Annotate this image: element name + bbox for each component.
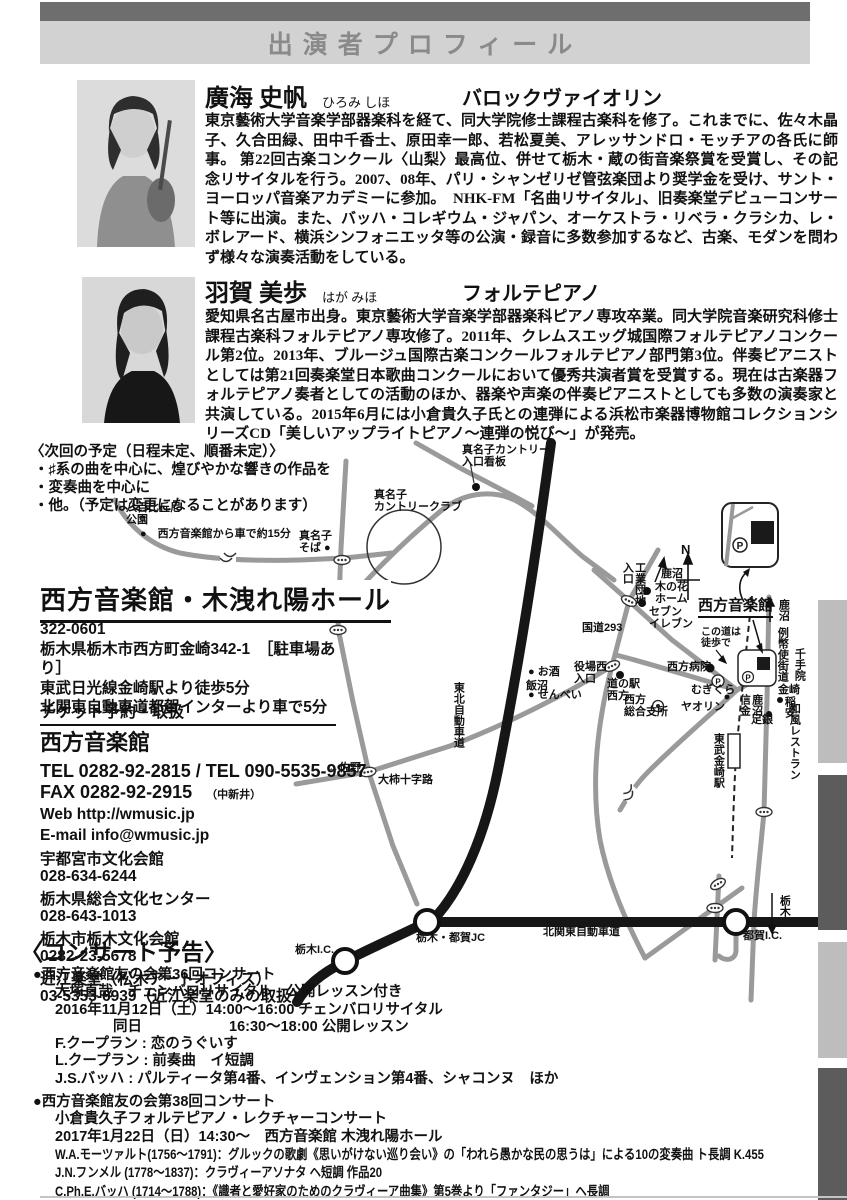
next-plan-item: ・変奏曲を中心に	[34, 479, 331, 497]
map-label-yakuba: 役場西 入口	[574, 661, 607, 686]
performer-bio-1: 東京藝術大学音楽学部器楽科を経て、同大学院修士課程古楽科を修了。これまでに、佐々…	[205, 112, 838, 268]
performer-instrument-2: フォルテピアノ	[462, 277, 600, 306]
concert-title-0: ●西方音楽館友の会第36回コンサート	[33, 967, 847, 984]
map-label-kogyo-danchi: 工業団地 入口	[621, 562, 646, 606]
next-plan-title: 〈次回の予定（日程未定、順番未定）〉	[30, 443, 331, 461]
map-label-mugikura: むぎくら	[691, 684, 735, 696]
map-label-tobu-sta: 東武金崎駅	[712, 733, 724, 788]
email-address[interactable]: E-mail info@wmusic.jp	[40, 827, 367, 845]
performer-bio-2: 愛知県名古屋市出身。東京藝術大学音楽学部器楽科ピアノ専攻卒業。同大学院音楽研究科…	[205, 308, 838, 445]
ticket-main-outlet: 西方音楽館	[40, 725, 367, 757]
venue-access-rail: 東武日光線金崎駅より徒歩5分	[40, 679, 336, 699]
concert-line: F.クープラン : 恋のうぐいす	[55, 1036, 847, 1053]
flyer-page: 出演者プロフィール 廣海 史帆 ひろみ しほ バロックヴァイオリン 東京藝術大学…	[0, 0, 847, 1200]
outlet-1: 栃木県総合文化センター028-643-1013	[40, 891, 367, 925]
map-label-kanuma-n: 鹿沼	[661, 568, 683, 580]
map-label-wafu: 和風レストラン	[788, 703, 800, 780]
performer-kana-1: ひろみ しほ	[322, 92, 390, 111]
header-dark-bar	[40, 2, 810, 21]
map-label-route-293: 国道293	[582, 622, 622, 634]
venue-name-heading: 西方音楽館・木洩れ陽ホール	[40, 580, 391, 623]
map-label-senbei: ● せんべい	[528, 689, 582, 701]
map-label-hospital: 西方病院	[667, 661, 711, 673]
map-label-kanuma-e: 鹿沼	[777, 599, 789, 621]
map-label-tochigi-s: 栃木	[778, 895, 790, 917]
concert-line: L.クープラン : 前奏曲 イ短調	[55, 1053, 847, 1070]
photo-haga-miho	[82, 277, 195, 423]
concert-line: J.S.バッハ : パルティータ第4番、インヴェンション第4番、シャコンヌ ほか	[55, 1071, 847, 1088]
map-label-osake: ● お酒	[528, 666, 560, 678]
map-label-tochigi-tsuga-jc: 栃木・都賀JC	[416, 932, 485, 944]
map-label-ongakukan: 西方音楽館	[698, 598, 773, 618]
performer-name-1: 廣海 史帆	[205, 78, 307, 113]
outlet-0: 宇都宮市文化会館028-634-6244	[40, 851, 367, 885]
map-label-konohana: 木の花 ホーム	[655, 581, 688, 606]
concert-line: 大塚直哉 チェンバロリサイタル 公開レッスン付き	[55, 984, 847, 1001]
performer-instrument-1: バロックヴァイオリン	[462, 82, 662, 111]
performer-name-2: 羽賀 美歩	[205, 273, 307, 308]
map-label-shinkin: 鹿沼 信金	[738, 694, 763, 716]
header-band: 出演者プロフィール	[40, 21, 810, 64]
map-label-kitakanto-expwy: 北関東自動車道	[543, 926, 620, 938]
fax-value: FAX 0282-92-2915	[40, 782, 192, 802]
map-label-manago-cc: 真名子 カントリークラブ	[374, 489, 462, 514]
fax-note: （中新井）	[206, 789, 261, 801]
map-label-senjuin: 千手院	[793, 648, 805, 681]
next-plan-block: 〈次回の予定（日程未定、順番未定）〉 ・♯系の曲を中心に、煌びやかな響きの作品を…	[30, 443, 331, 515]
outlet-tel: 028-634-6244	[40, 868, 367, 885]
map-label-kanasaki: 金崎	[778, 684, 800, 696]
outlet-name: 宇都宮市文化会館	[40, 851, 367, 868]
map-label-ashigin: 足銀	[751, 714, 773, 726]
next-plan-item: ・♯系の曲を中心に、煌びやかな響きの作品を	[34, 461, 331, 479]
map-label-yaorin: ヤオリン	[681, 701, 725, 713]
next-plan-item: ・他。（予定は変更になることがあります）	[34, 497, 331, 515]
map-label-tohoku-exp: 東北自動車道	[452, 682, 464, 748]
pianist-portrait-illustration	[82, 277, 195, 423]
map-label-seven-eleven: セブン イレブン	[649, 606, 693, 631]
violinist-portrait-illustration	[77, 80, 195, 247]
concert-line: 小倉貴久子フォルテピアノ・レクチャーコンサート	[55, 1111, 847, 1128]
map-label-compass-n: N	[681, 543, 690, 558]
concert-line: 2017年1月22日（日）14:30～ 西方音楽館 木洩れ陽ホール	[55, 1129, 847, 1146]
map-label-michinoeki: 道の駅 西方	[607, 678, 640, 703]
map-label-reiheishi: 例幣使街道	[776, 627, 788, 682]
map-label-konomichi: この道は 徒歩で	[701, 627, 741, 649]
map-label-manago-soba: 真名子 そば ●	[299, 530, 332, 555]
venue-address: 栃木県栃木市西方町金崎342-1 ［駐車場あり］	[40, 640, 336, 679]
announcements-list: ●西方音楽館友の会第36回コンサート大塚直哉 チェンバロリサイタル 公開レッスン…	[33, 961, 847, 1200]
concert-line: 同日 16:30～18:00 公開レッスン	[55, 1019, 847, 1036]
page-title: 出演者プロフィール	[268, 25, 583, 61]
bottom-divider	[40, 1196, 847, 1198]
concert-title-1: ●西方音楽館友の会第38回コンサート	[33, 1094, 847, 1111]
photo-hiromi-shiho	[77, 80, 195, 247]
performer-kana-2: はが みほ	[322, 287, 377, 306]
outlet-tel: 028-643-1013	[40, 908, 367, 925]
outlet-name: 栃木県総合文化センター	[40, 891, 367, 908]
map-label-tsuga-ic: 都賀I.C.	[743, 930, 782, 942]
map-label-drive-note: ● 西方音楽館から車で約15分	[140, 528, 291, 540]
fax-number: FAX 0282-92-2915（中新井）	[40, 782, 367, 803]
map-label-okaki-jyujiro: 大柿十字路	[378, 774, 433, 786]
website-url[interactable]: Web http://wmusic.jp	[40, 806, 367, 824]
concert-line: W.A.モーツァルト(1756～1791)：グルックの歌劇《思いがけない巡り会い…	[55, 1146, 847, 1164]
concert-line: J.N.フンメル (1778～1837)：クラヴィーアソナタ ヘ短調 作品20	[55, 1164, 847, 1182]
venue-postal: 322-0601	[40, 620, 336, 640]
concert-line: 2016年11月12日（土）14:00～16:00 チェンバロリサイタル	[55, 1002, 847, 1019]
phone-numbers: TEL 0282-92-2815 / TEL 090-5535-9857	[40, 761, 367, 782]
ticket-heading: チケット予約・取扱	[40, 698, 367, 722]
map-label-manago-cc-sign: 真名子カントリー 入口看板	[462, 444, 550, 469]
